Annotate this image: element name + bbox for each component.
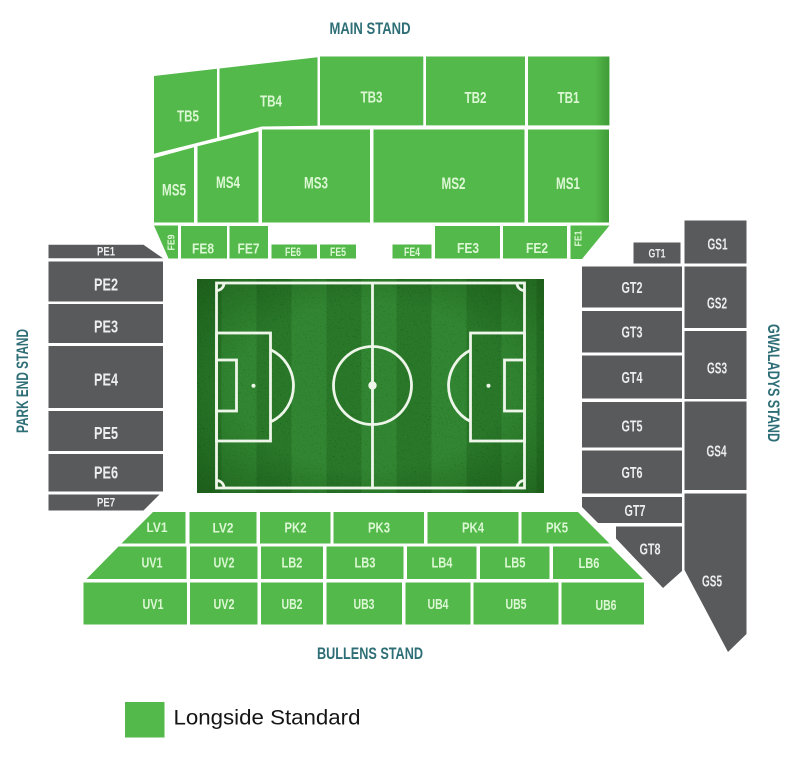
svg-text:PE5: PE5 bbox=[94, 423, 118, 443]
svg-text:LB3: LB3 bbox=[355, 556, 376, 572]
svg-text:TB2: TB2 bbox=[465, 90, 487, 107]
svg-text:TB5: TB5 bbox=[177, 109, 199, 126]
svg-text:FE9: FE9 bbox=[165, 234, 177, 250]
svg-text:GT8: GT8 bbox=[640, 542, 661, 559]
svg-text:LB2: LB2 bbox=[282, 556, 303, 572]
svg-text:GS2: GS2 bbox=[707, 296, 727, 313]
svg-text:GT6: GT6 bbox=[622, 465, 643, 482]
svg-text:PE2: PE2 bbox=[94, 274, 118, 294]
svg-text:PE6: PE6 bbox=[94, 462, 118, 482]
svg-text:UV1: UV1 bbox=[143, 597, 164, 613]
svg-text:PE7: PE7 bbox=[97, 498, 115, 510]
svg-text:LB4: LB4 bbox=[432, 556, 453, 572]
svg-text:MS3: MS3 bbox=[304, 174, 328, 193]
svg-text:UB4: UB4 bbox=[428, 597, 449, 613]
svg-text:MS5: MS5 bbox=[162, 181, 186, 200]
svg-text:UV1: UV1 bbox=[142, 556, 163, 572]
svg-text:MS4: MS4 bbox=[216, 173, 240, 192]
svg-text:GT5: GT5 bbox=[622, 419, 643, 436]
svg-text:MS1: MS1 bbox=[556, 174, 580, 193]
svg-text:PK4: PK4 bbox=[462, 521, 484, 537]
svg-text:TB1: TB1 bbox=[558, 90, 580, 107]
svg-text:TB3: TB3 bbox=[361, 90, 383, 107]
svg-text:PE1: PE1 bbox=[97, 247, 115, 259]
svg-text:MS2: MS2 bbox=[442, 174, 466, 193]
svg-text:GT4: GT4 bbox=[622, 370, 643, 387]
svg-text:FE7: FE7 bbox=[238, 240, 260, 257]
svg-text:UB2: UB2 bbox=[282, 597, 303, 613]
svg-text:GS5: GS5 bbox=[702, 574, 722, 591]
svg-text:FE6: FE6 bbox=[285, 247, 301, 259]
svg-text:PK5: PK5 bbox=[546, 521, 568, 537]
svg-text:LV2: LV2 bbox=[213, 520, 234, 536]
svg-text:GS3: GS3 bbox=[707, 361, 727, 378]
svg-text:PARK END STAND: PARK END STAND bbox=[13, 329, 32, 433]
svg-text:UB3: UB3 bbox=[354, 597, 375, 613]
svg-text:LV1: LV1 bbox=[147, 519, 168, 535]
svg-text:BULLENS STAND: BULLENS STAND bbox=[317, 644, 423, 663]
svg-text:FE4: FE4 bbox=[404, 247, 420, 259]
svg-text:GS4: GS4 bbox=[707, 444, 727, 461]
svg-text:GT1: GT1 bbox=[649, 246, 666, 260]
svg-text:UV2: UV2 bbox=[214, 597, 235, 613]
svg-text:GT7: GT7 bbox=[625, 503, 646, 520]
svg-text:PK3: PK3 bbox=[368, 521, 390, 537]
svg-text:UB6: UB6 bbox=[596, 598, 617, 614]
svg-text:PE4: PE4 bbox=[94, 369, 118, 389]
svg-text:Longside Standard: Longside Standard bbox=[174, 706, 361, 730]
svg-text:UV2: UV2 bbox=[214, 556, 235, 572]
svg-text:MAIN STAND: MAIN STAND bbox=[330, 19, 411, 38]
svg-text:FE3: FE3 bbox=[457, 240, 479, 257]
svg-text:LB5: LB5 bbox=[505, 556, 526, 572]
svg-text:FE1: FE1 bbox=[572, 230, 584, 246]
svg-text:FE8: FE8 bbox=[192, 240, 214, 257]
svg-text:GT2: GT2 bbox=[622, 280, 643, 297]
svg-text:FE2: FE2 bbox=[526, 240, 548, 257]
svg-text:UB5: UB5 bbox=[506, 597, 527, 613]
svg-text:PE3: PE3 bbox=[94, 316, 118, 336]
svg-text:FE5: FE5 bbox=[330, 247, 346, 259]
svg-text:GS1: GS1 bbox=[708, 237, 728, 254]
svg-text:GWALADYS STAND: GWALADYS STAND bbox=[764, 324, 783, 442]
svg-text:GT3: GT3 bbox=[622, 325, 643, 342]
svg-text:PK2: PK2 bbox=[285, 521, 307, 537]
svg-text:TB4: TB4 bbox=[260, 94, 282, 111]
svg-text:LB6: LB6 bbox=[579, 556, 600, 572]
